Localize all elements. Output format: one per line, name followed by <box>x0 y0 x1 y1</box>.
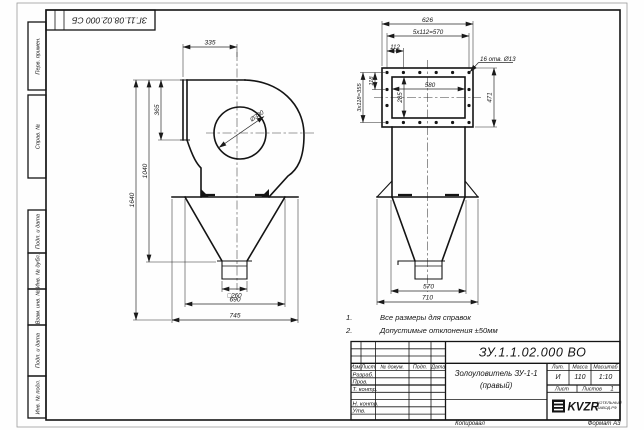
product-name-line1: Золоуловитель ЗУ-1-1 <box>455 369 538 378</box>
sheets-value: 1 <box>610 387 613 393</box>
front-view <box>374 60 481 292</box>
margin-label-inv-podl: Инв. № подл. <box>36 380 42 415</box>
margin-label-inv-dubl: Инв. № дубл. <box>36 254 42 288</box>
row-razrab: Разраб. <box>353 372 374 378</box>
row-utv: Утв. <box>352 409 366 415</box>
row-n-contr: Н. контр. <box>353 401 379 407</box>
engineering-drawing: ЗГ.11.08.02.000 СБ Перв. примен. Справ. … <box>0 0 644 430</box>
kvzr-logo-icon <box>552 400 565 413</box>
dim-hole-pitch-v: 3x118=355 <box>357 83 363 112</box>
row-t-contr: Т. контр. <box>353 387 378 393</box>
product-name-line2: (правый) <box>480 381 513 390</box>
note-2-text: Допустимые отклонения ±50мм <box>379 326 498 335</box>
dim-overall-width: 745 <box>229 313 240 320</box>
dim-cone-top-front: 570 <box>423 284 434 291</box>
logo-text: KVZR <box>568 402 600 414</box>
note-2-number: 2. <box>345 326 352 335</box>
margin-label-vzam: Взам. инв. № <box>36 290 42 325</box>
footer-copied: Копировал <box>455 421 485 427</box>
row-prov: Пров. <box>353 380 368 386</box>
dim-overall-width-front: 710 <box>422 295 433 302</box>
col-list: Лист <box>360 365 375 371</box>
front-view-dimensions: 626 5x112=570 112 16 отв. Ø13 3x118=355 … <box>357 17 516 305</box>
note-1-number: 1. <box>346 313 352 322</box>
dim-height-mid: 1040 <box>142 163 149 178</box>
note-1-text: Все размеры для справок <box>380 313 471 322</box>
holes-note: 16 отв. Ø13 <box>480 56 516 63</box>
scale-label: Масштаб <box>593 365 618 371</box>
margin-label-podp2: Подп. и дата <box>36 333 42 368</box>
dim-hole-offset: 112 <box>390 44 400 51</box>
side-view-dimensions: 335 365 1040 1640 Ø380 □260 690 745 <box>129 40 298 323</box>
top-left-stamp: ЗГ.11.08.02.000 СБ <box>46 10 155 30</box>
mass-label: Масса <box>572 365 587 371</box>
sheets-label: Листов <box>581 387 602 393</box>
margin-label-perv: Перв. примен. <box>36 37 42 74</box>
dim-hole-offset-v: 118 <box>369 76 375 86</box>
left-margin-boxes: Перв. примен. Справ. № Подп. и дата Инв.… <box>28 22 46 418</box>
dim-flange-height: 471 <box>487 92 494 102</box>
doc-number: ЗУ.1.1.02.000 ВО <box>479 346 587 360</box>
col-podp: Подп. <box>413 365 427 371</box>
dim-height-total: 1640 <box>129 192 136 207</box>
footer-format: Формат А3 <box>588 421 621 427</box>
lit-value: И <box>555 374 561 381</box>
scale-value: 1:10 <box>599 374 613 381</box>
drawing-sheet: ЗГ.11.08.02.000 СБ Перв. примен. Справ. … <box>0 0 644 430</box>
dim-flange-height: 365 <box>154 104 161 115</box>
dim-inlet-width: 335 <box>204 40 215 47</box>
dim-cone-top: 690 <box>229 297 240 304</box>
dim-flange-width: 626 <box>422 17 433 24</box>
notes: 1. Все размеры для справок 2. Допустимые… <box>345 313 498 335</box>
mass-value: 110 <box>574 374 585 381</box>
title-block: Изм. Лист № докум. Подп. Дата Разраб. Пр… <box>350 342 621 421</box>
margin-label-podp1: Подп. и дата <box>36 214 42 249</box>
top-stamp-number: ЗГ.11.08.02.000 СБ <box>71 15 147 25</box>
col-izm: Изм. <box>350 365 362 371</box>
sheet-label: Лист <box>554 387 569 393</box>
lit-label: Лит. <box>551 365 564 371</box>
col-data: Дата <box>430 365 445 371</box>
side-view <box>172 52 314 290</box>
logo-caption-line2: ЗАВОД.РФ <box>597 405 617 410</box>
dim-opening-height: 285 <box>397 92 404 104</box>
col-doc: № докум. <box>380 365 404 371</box>
margin-label-sprav: Справ. № <box>36 124 42 149</box>
footer-strip: Копировал Формат А3 <box>455 421 621 427</box>
dim-hole-pitch-h: 5x112=570 <box>413 29 444 36</box>
dim-opening-width: 580 <box>425 82 436 89</box>
